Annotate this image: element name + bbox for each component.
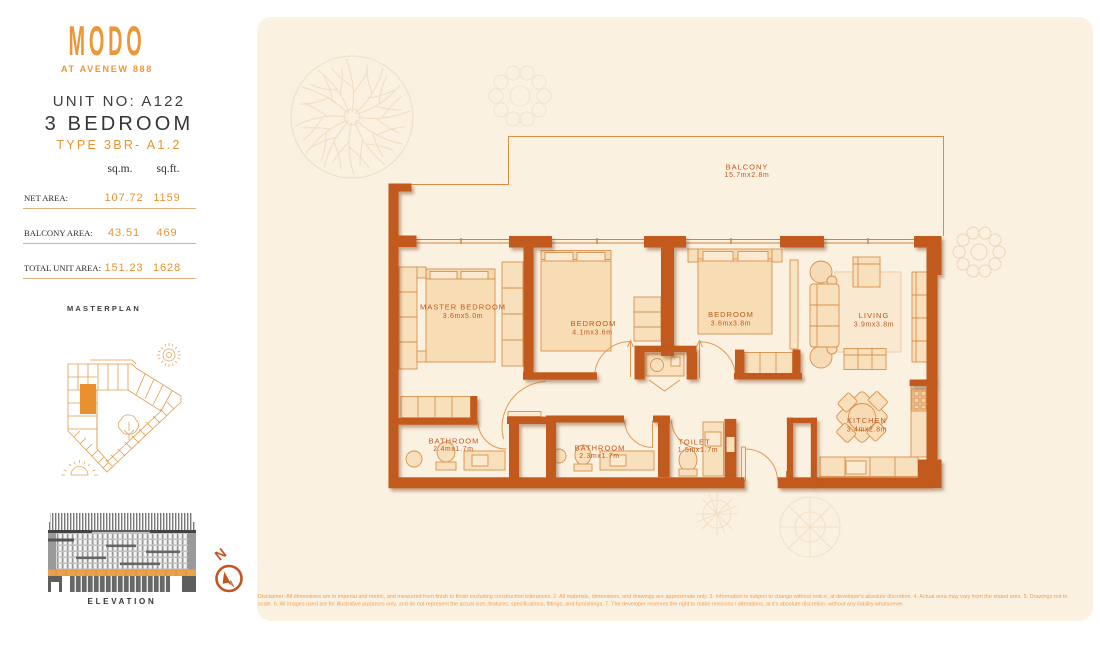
svg-text:scale. 6. All images used are: scale. 6. All images used are for illust… xyxy=(258,602,905,608)
svg-text:KITCHEN: KITCHEN xyxy=(847,416,887,425)
svg-text:15.7mx2.8m: 15.7mx2.8m xyxy=(725,172,770,179)
svg-text:BATHROOM: BATHROOM xyxy=(575,444,626,453)
svg-text:1.5mx1.7m: 1.5mx1.7m xyxy=(678,447,718,454)
svg-text:3.4mx2.8m: 3.4mx2.8m xyxy=(847,427,887,434)
svg-text:MASTER BEDROOM: MASTER BEDROOM xyxy=(420,303,506,312)
svg-text:2.4mx1.7m: 2.4mx1.7m xyxy=(433,446,473,453)
svg-text:LIVING: LIVING xyxy=(859,311,890,320)
svg-text:N: N xyxy=(211,545,229,564)
svg-text:BATHROOM: BATHROOM xyxy=(429,437,480,446)
svg-text:3.6mx5.0m: 3.6mx5.0m xyxy=(443,313,483,320)
svg-text:TOILET: TOILET xyxy=(678,438,710,447)
svg-text:Disclaimer: All dimensions are: Disclaimer: All dimensions are in imperi… xyxy=(258,594,1067,600)
svg-text:MODO: MODO xyxy=(69,22,146,60)
svg-text:3.6mx3.8m: 3.6mx3.8m xyxy=(711,320,751,327)
svg-text:BALCONY: BALCONY xyxy=(726,163,769,172)
svg-text:2.3mx1.7m: 2.3mx1.7m xyxy=(579,453,619,460)
svg-text:4.1mx3.6m: 4.1mx3.6m xyxy=(572,329,612,336)
svg-text:BEDROOM: BEDROOM xyxy=(708,310,754,319)
svg-text:BEDROOM: BEDROOM xyxy=(571,319,617,328)
svg-text:3.9mx3.8m: 3.9mx3.8m xyxy=(854,321,894,328)
